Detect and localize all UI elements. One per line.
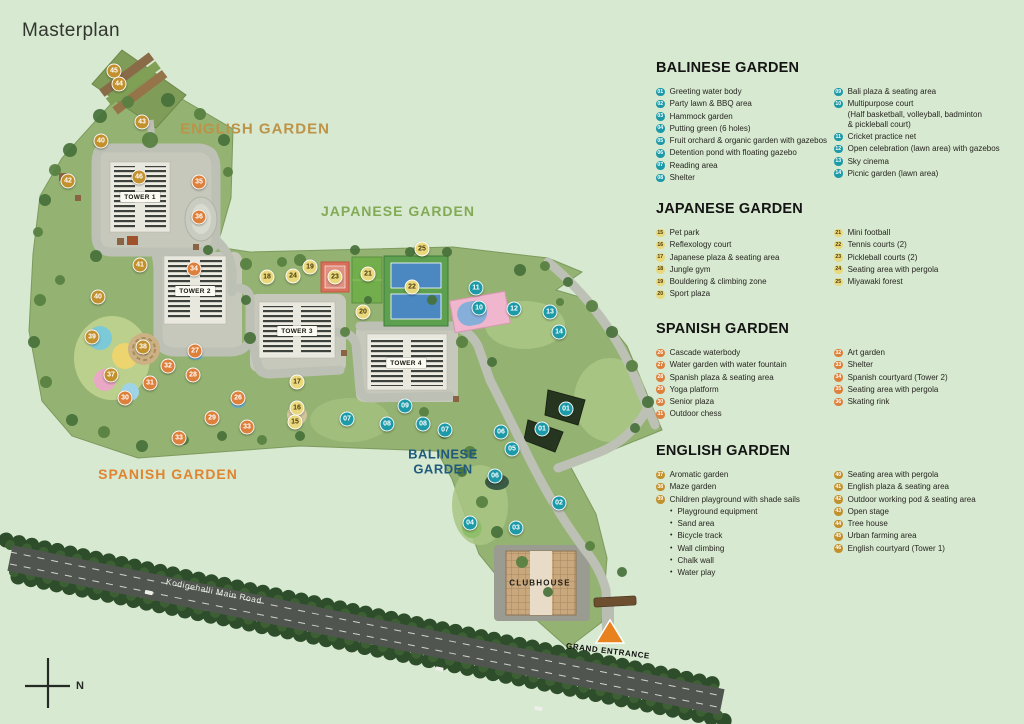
- map-marker-07: 07: [340, 412, 355, 427]
- legend-item-label: Children playground with shade sails: [670, 495, 800, 505]
- legend-item-label: Seating area with pergola: [848, 385, 939, 395]
- map-marker-03: 03: [509, 521, 524, 536]
- map-marker-07: 07: [438, 423, 453, 438]
- map-marker-19: 19: [303, 260, 318, 275]
- legend-badge-06: 06: [656, 149, 665, 158]
- legend-badge-08: 08: [656, 174, 665, 183]
- legend-item-44: 44Tree house: [834, 519, 1022, 529]
- legend-item-07: 07Reading area: [656, 161, 834, 171]
- legend-badge-03: 03: [656, 112, 665, 121]
- map-marker-04: 04: [463, 516, 478, 531]
- legend-item-label: Tennis courts (2): [848, 240, 907, 250]
- place-label-tower-2: TOWER 2: [175, 286, 215, 296]
- compass-icon: [25, 658, 70, 708]
- legend-item-27: 27Water garden with water fountain: [656, 360, 834, 370]
- legend-badge-19: 19: [656, 278, 665, 287]
- legend-badge-05: 05: [656, 137, 665, 146]
- legend-subitem: •Wall climbing: [670, 544, 834, 554]
- legend-badge-14: 14: [834, 169, 843, 178]
- legend-heading-spanish: SPANISH GARDEN: [656, 321, 1022, 337]
- legend-item-label: Seating area with pergola: [848, 265, 939, 275]
- legend-item-04: 04Putting green (6 holes): [656, 124, 834, 134]
- legend-item-label: Spanish courtyard (Tower 2): [848, 373, 948, 383]
- map-marker-40: 40: [94, 134, 109, 149]
- legend-badge-46: 46: [834, 544, 843, 553]
- map-marker-40: 40: [91, 290, 106, 305]
- legend-badge-12: 12: [834, 145, 843, 154]
- legend-item-24: 24Seating area with pergola: [834, 265, 1022, 275]
- legend-item-label: Art garden: [848, 348, 885, 358]
- legend-subitem: •Sand area: [670, 519, 834, 529]
- legend-item-label: Seating area with pergola: [848, 470, 939, 480]
- legend-item-label: Miyawaki forest: [848, 277, 903, 287]
- map-marker-15: 15: [288, 415, 303, 430]
- place-label-tower-1: TOWER 1: [120, 192, 160, 202]
- map-marker-18: 18: [260, 270, 275, 285]
- legend-item-label: Jungle gym: [670, 265, 711, 275]
- legend-badge-40: 40: [834, 471, 843, 480]
- legend-item-label: Cricket practice net: [848, 132, 916, 142]
- map-marker-21: 21: [361, 267, 376, 282]
- legend-item-36: 36Skating rink: [834, 397, 1022, 407]
- map-marker-01: 01: [559, 402, 574, 417]
- legend-badge-01: 01: [656, 88, 665, 97]
- legend-item-39: 39Children playground with shade sails: [656, 495, 834, 505]
- compass-north-label: N: [76, 680, 84, 692]
- map-marker-28: 28: [186, 368, 201, 383]
- legend-item-label: Skating rink: [848, 397, 890, 407]
- legend-badge-27: 27: [656, 361, 665, 370]
- legend-item-label: Reflexology court: [670, 240, 732, 250]
- legend-item-40: 40Seating area with pergola: [834, 470, 1022, 480]
- legend-badge-34: 34: [834, 373, 843, 382]
- map-marker-35: 35: [192, 175, 207, 190]
- legend-badge-38: 38: [656, 483, 665, 492]
- legend-item-label: Outdoor working pod & seating area: [848, 495, 976, 505]
- legend-item-20: 20Sport plaza: [656, 289, 834, 299]
- legend-badge-37: 37: [656, 471, 665, 480]
- garden-label-english: ENGLISH GARDEN: [180, 122, 330, 139]
- legend-section-japanese: JAPANESE GARDEN15Pet park16Reflexology c…: [656, 201, 1022, 302]
- legend-item-label: Putting green (6 holes): [670, 124, 751, 134]
- map-marker-08: 08: [416, 417, 431, 432]
- map-marker-24: 24: [286, 269, 301, 284]
- legend-badge-43: 43: [834, 507, 843, 516]
- legend-item-11: 11Cricket practice net: [834, 132, 1022, 142]
- legend-item-label: Party lawn & BBQ area: [670, 99, 752, 109]
- legend-item-label: Shelter: [670, 173, 695, 183]
- legend-item-02: 02Party lawn & BBQ area: [656, 99, 834, 109]
- legend-item-33: 33Shelter: [834, 360, 1022, 370]
- map-marker-22: 22: [405, 280, 420, 295]
- legend-item-label: Detention pond with floating gazebo: [670, 148, 797, 158]
- legend-badge-21: 21: [834, 229, 843, 238]
- legend-item-22: 22Tennis courts (2): [834, 240, 1022, 250]
- map-marker-01: 01: [535, 422, 550, 437]
- legend-item-35: 35Seating area with pergola: [834, 385, 1022, 395]
- legend-badge-22: 22: [834, 241, 843, 250]
- map-marker-13: 13: [543, 305, 558, 320]
- legend-item-38: 38Maze garden: [656, 482, 834, 492]
- legend-item-label: Open celebration (lawn area) with gazebo…: [848, 144, 1000, 154]
- legend-item-34: 34Spanish courtyard (Tower 2): [834, 373, 1022, 383]
- legend-badge-04: 04: [656, 124, 665, 133]
- map-marker-17: 17: [290, 375, 305, 390]
- map-marker-46: 46: [132, 170, 147, 185]
- legend-badge-18: 18: [656, 265, 665, 274]
- legend-item-label: Aromatic garden: [670, 470, 729, 480]
- legend-section-balinese: BALINESE GARDEN01Greeting water body02Pa…: [656, 60, 1022, 185]
- legend-badge-26: 26: [656, 349, 665, 358]
- legend-subitem: •Bicycle track: [670, 531, 834, 541]
- map-marker-43: 43: [135, 115, 150, 130]
- place-label-clubhouse: CLUBHOUSE: [509, 579, 570, 588]
- legend-item-label: Water garden with water fountain: [670, 360, 787, 370]
- legend-item-label: Pet park: [670, 228, 700, 238]
- legend-item-05: 05Fruit orchard & organic garden with ga…: [656, 136, 834, 146]
- legend-item-label: Sport plaza: [670, 289, 710, 299]
- map-marker-32: 32: [161, 359, 176, 374]
- legend-item-label: Reading area: [670, 161, 718, 171]
- legend-badge-10: 10: [834, 100, 843, 109]
- legend-item-43: 43Open stage: [834, 507, 1022, 517]
- legend-item-06: 06Detention pond with floating gazebo: [656, 148, 834, 158]
- masterplan-page: Masterplan ENGLISH GARDENJAPANESE GARDEN…: [0, 0, 1024, 724]
- legend-badge-44: 44: [834, 520, 843, 529]
- legend-item-15: 15Pet park: [656, 228, 834, 238]
- legend-subitem: •Playground equipment: [670, 507, 834, 517]
- legend-item-label: Cascade waterbody: [670, 348, 741, 358]
- legend-item-label: Greeting water body: [670, 87, 742, 97]
- legend-item-label: Shelter: [848, 360, 873, 370]
- legend-badge-42: 42: [834, 495, 843, 504]
- garden-label-spanish: SPANISH GARDEN: [98, 467, 238, 483]
- map-marker-38: 38: [136, 340, 151, 355]
- map-marker-29: 29: [205, 411, 220, 426]
- legend-item-label: Outdoor chess: [670, 409, 722, 419]
- legend-item-label: Fruit orchard & organic garden with gaze…: [670, 136, 827, 146]
- legend-item-37: 37Aromatic garden: [656, 470, 834, 480]
- legend-item-10: 10Multipurpose court(Half basketball, vo…: [834, 99, 1022, 130]
- legend-item-26: 26Cascade waterbody: [656, 348, 834, 358]
- legend-item-30: 30Senior plaza: [656, 397, 834, 407]
- legend-item-03: 03Hammock garden: [656, 112, 834, 122]
- legend-section-english: ENGLISH GARDEN37Aromatic garden38Maze ga…: [656, 443, 1022, 581]
- legend-item-label: Bali plaza & seating area: [848, 87, 937, 97]
- legend-item-29: 29Yoga platform: [656, 385, 834, 395]
- legend-badge-36: 36: [834, 398, 843, 407]
- map-marker-08: 08: [380, 417, 395, 432]
- legend: BALINESE GARDEN01Greeting water body02Pa…: [656, 60, 1022, 700]
- place-label-tower-3: TOWER 3: [277, 326, 317, 336]
- map-marker-30: 30: [118, 391, 133, 406]
- legend-badge-02: 02: [656, 100, 665, 109]
- map-marker-41: 41: [133, 258, 148, 273]
- legend-badge-13: 13: [834, 157, 843, 166]
- legend-item-label: Senior plaza: [670, 397, 714, 407]
- legend-badge-15: 15: [656, 229, 665, 238]
- legend-badge-07: 07: [656, 161, 665, 170]
- map-marker-09: 09: [398, 399, 413, 414]
- legend-item-label: English plaza & seating area: [848, 482, 949, 492]
- legend-badge-32: 32: [834, 349, 843, 358]
- map-marker-33: 33: [172, 431, 187, 446]
- legend-item-28: 28Spanish plaza & seating area: [656, 373, 834, 383]
- legend-item-45: 45Urban farming area: [834, 531, 1022, 541]
- legend-item-label: Open stage: [848, 507, 889, 517]
- place-label-tower-4: TOWER 4: [386, 358, 426, 368]
- map-marker-36: 36: [192, 210, 207, 225]
- map-marker-37: 37: [104, 368, 119, 383]
- legend-subitem: •Chalk wall: [670, 556, 834, 566]
- legend-badge-16: 16: [656, 241, 665, 250]
- map-marker-26: 26: [231, 391, 246, 406]
- legend-badge-20: 20: [656, 290, 665, 299]
- legend-subitem: •Water play: [670, 568, 834, 578]
- kodigehalli-main-road: [6, 540, 726, 721]
- garden-label-balinese: BALINESE GARDEN: [408, 447, 478, 476]
- legend-item-label: Multipurpose court(Half basketball, voll…: [848, 99, 982, 130]
- map-marker-10: 10: [472, 301, 487, 316]
- map-marker-44: 44: [112, 77, 127, 92]
- legend-item-label: Picnic garden (lawn area): [848, 169, 939, 179]
- legend-item-label: Mini football: [848, 228, 891, 238]
- legend-badge-29: 29: [656, 385, 665, 394]
- legend-item-21: 21Mini football: [834, 228, 1022, 238]
- map-marker-33: 33: [240, 420, 255, 435]
- map-marker-12: 12: [507, 302, 522, 317]
- legend-item-46: 46English courtyard (Tower 1): [834, 544, 1022, 554]
- map-marker-42: 42: [61, 174, 76, 189]
- legend-item-label: Urban farming area: [848, 531, 917, 541]
- legend-item-31: 31Outdoor chess: [656, 409, 834, 419]
- legend-item-label: English courtyard (Tower 1): [848, 544, 945, 554]
- legend-item-13: 13Sky cinema: [834, 157, 1022, 167]
- legend-item-41: 41English plaza & seating area: [834, 482, 1022, 492]
- legend-item-42: 42Outdoor working pod & seating area: [834, 495, 1022, 505]
- legend-item-label: Bouldering & climbing zone: [670, 277, 767, 287]
- garden-label-japanese: JAPANESE GARDEN: [321, 204, 475, 220]
- legend-item-18: 18Jungle gym: [656, 265, 834, 275]
- legend-item-label: Japanese plaza & seating area: [670, 253, 780, 263]
- map-marker-06: 06: [494, 425, 509, 440]
- legend-item-12: 12Open celebration (lawn area) with gaze…: [834, 144, 1022, 154]
- legend-item-17: 17Japanese plaza & seating area: [656, 253, 834, 263]
- map-marker-23: 23: [328, 270, 343, 285]
- legend-badge-17: 17: [656, 253, 665, 262]
- legend-badge-23: 23: [834, 253, 843, 262]
- legend-badge-45: 45: [834, 532, 843, 541]
- map-marker-34: 34: [187, 262, 202, 277]
- legend-item-label: Spanish plaza & seating area: [670, 373, 774, 383]
- legend-item-25: 25Miyawaki forest: [834, 277, 1022, 287]
- legend-badge-28: 28: [656, 373, 665, 382]
- map-marker-11: 11: [469, 281, 484, 296]
- legend-item-label: Maze garden: [670, 482, 717, 492]
- legend-item-label: Sky cinema: [848, 157, 889, 167]
- map-marker-14: 14: [552, 325, 567, 340]
- legend-badge-30: 30: [656, 398, 665, 407]
- legend-badge-35: 35: [834, 385, 843, 394]
- legend-item-label: Yoga platform: [670, 385, 719, 395]
- legend-item-23: 23Pickleball courts (2): [834, 253, 1022, 263]
- legend-item-label: Hammock garden: [670, 112, 733, 122]
- map-marker-27: 27: [188, 344, 203, 359]
- legend-badge-09: 09: [834, 88, 843, 97]
- map-marker-20: 20: [356, 305, 371, 320]
- map-marker-25: 25: [415, 242, 430, 257]
- legend-item-08: 08Shelter: [656, 173, 834, 183]
- legend-heading-english: ENGLISH GARDEN: [656, 443, 1022, 459]
- legend-badge-33: 33: [834, 361, 843, 370]
- legend-item-16: 16Reflexology court: [656, 240, 834, 250]
- legend-badge-41: 41: [834, 483, 843, 492]
- legend-item-14: 14Picnic garden (lawn area): [834, 169, 1022, 179]
- legend-item-19: 19Bouldering & climbing zone: [656, 277, 834, 287]
- map-marker-06: 06: [488, 469, 503, 484]
- map-marker-31: 31: [143, 376, 158, 391]
- map-marker-05: 05: [505, 442, 520, 457]
- legend-badge-25: 25: [834, 278, 843, 287]
- legend-item-09: 09Bali plaza & seating area: [834, 87, 1022, 97]
- map-marker-39: 39: [85, 330, 100, 345]
- legend-badge-39: 39: [656, 495, 665, 504]
- legend-item-01: 01Greeting water body: [656, 87, 834, 97]
- map-marker-16: 16: [290, 401, 305, 416]
- legend-heading-japanese: JAPANESE GARDEN: [656, 201, 1022, 217]
- legend-item-32: 32Art garden: [834, 348, 1022, 358]
- map-marker-02: 02: [552, 496, 567, 511]
- legend-badge-31: 31: [656, 410, 665, 419]
- legend-heading-balinese: BALINESE GARDEN: [656, 60, 1022, 76]
- legend-badge-11: 11: [834, 133, 843, 142]
- legend-item-label: Tree house: [848, 519, 888, 529]
- legend-section-spanish: SPANISH GARDEN26Cascade waterbody27Water…: [656, 321, 1022, 422]
- page-title: Masterplan: [22, 20, 120, 42]
- legend-badge-24: 24: [834, 265, 843, 274]
- legend-item-label: Pickleball courts (2): [848, 253, 918, 263]
